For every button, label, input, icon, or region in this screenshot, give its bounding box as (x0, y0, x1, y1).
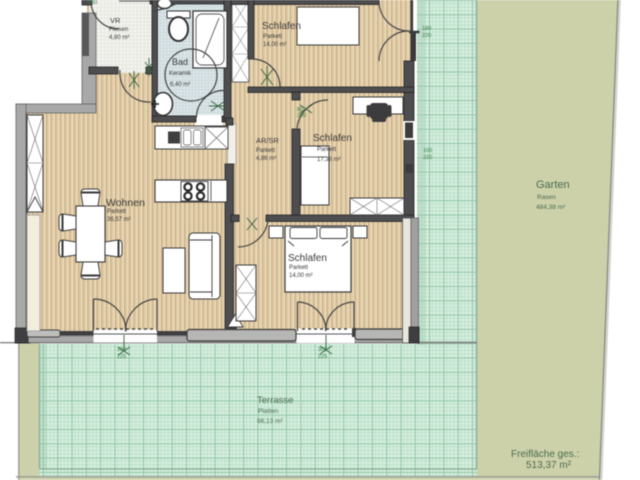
svg-text:484,38 m²: 484,38 m² (536, 204, 566, 211)
svg-text:Freifläche ges.:: Freifläche ges.: (511, 449, 579, 460)
svg-text:Fliesen: Fliesen (109, 27, 128, 33)
svg-text:17,38 m²: 17,38 m² (317, 157, 341, 163)
svg-text:225: 225 (318, 354, 327, 360)
svg-text:AR/SR: AR/SR (256, 136, 280, 145)
svg-text:Parkett: Parkett (317, 147, 336, 153)
svg-text:14,00 m²: 14,00 m² (289, 273, 313, 279)
svg-text:Bad: Bad (172, 57, 188, 67)
svg-text:36,57 m²: 36,57 m² (107, 217, 131, 223)
svg-text:Parkett: Parkett (263, 34, 282, 40)
svg-text:Keramik: Keramik (169, 71, 192, 77)
svg-text:Platten: Platten (258, 408, 279, 415)
svg-text:300: 300 (318, 347, 327, 353)
svg-text:Schlafen: Schlafen (288, 253, 327, 264)
svg-text:200: 200 (297, 113, 306, 119)
svg-text:4,80 m²: 4,80 m² (109, 35, 129, 41)
svg-text:Rasen: Rasen (537, 194, 556, 201)
svg-text:220: 220 (423, 155, 432, 161)
svg-text:513,37 m²: 513,37 m² (526, 460, 572, 471)
svg-text:66,13 m²: 66,13 m² (257, 418, 283, 425)
svg-text:14,00 m²: 14,00 m² (263, 42, 287, 48)
svg-text:Schlafen: Schlafen (313, 133, 352, 144)
svg-text:225: 225 (117, 354, 126, 360)
svg-text:Parkett: Parkett (107, 209, 126, 215)
svg-text:180: 180 (422, 26, 431, 32)
svg-text:220: 220 (422, 33, 431, 39)
svg-text:Schlafen: Schlafen (262, 21, 301, 32)
svg-text:300: 300 (117, 347, 126, 353)
svg-text:VR: VR (110, 16, 121, 25)
svg-text:4,86 m²: 4,86 m² (256, 156, 276, 162)
svg-text:Wohnen: Wohnen (106, 197, 145, 209)
svg-text:200: 200 (88, 0, 97, 6)
svg-text:Garten: Garten (536, 179, 570, 191)
svg-text:Parkett: Parkett (289, 265, 308, 271)
svg-text:6,40 m²: 6,40 m² (170, 82, 190, 88)
svg-text:Terrasse: Terrasse (257, 395, 293, 406)
svg-text:100: 100 (423, 148, 432, 154)
svg-text:Parkett: Parkett (256, 148, 275, 154)
